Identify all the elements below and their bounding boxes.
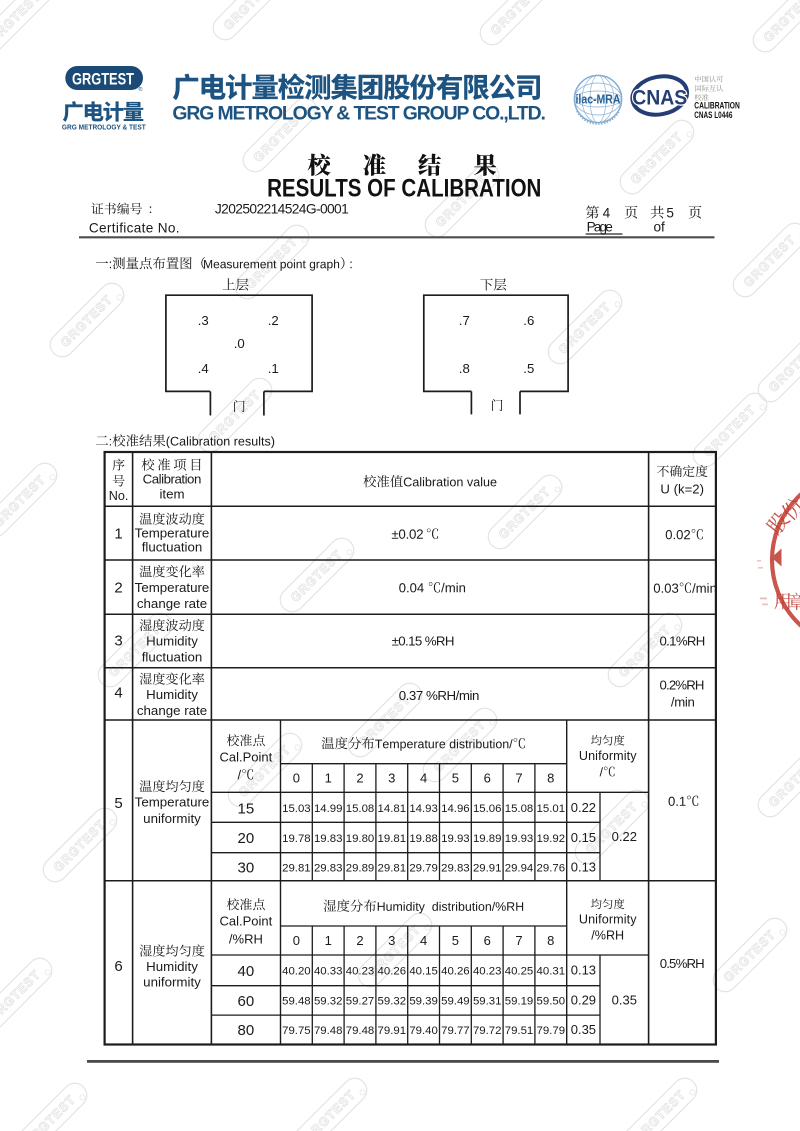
svg-text:uniformity: uniformity [143, 811, 201, 826]
svg-text:5: 5 [114, 795, 122, 812]
svg-text:79.77: 79.77 [441, 1025, 470, 1037]
svg-text:29.91: 29.91 [473, 863, 502, 875]
svg-text:79.79: 79.79 [537, 1025, 566, 1037]
svg-text:1: 1 [114, 526, 122, 543]
svg-text:19.89: 19.89 [473, 833, 502, 845]
svg-text:6: 6 [484, 933, 491, 948]
svg-text:79.72: 79.72 [473, 1025, 502, 1037]
svg-text:0.13: 0.13 [571, 860, 596, 875]
svg-text:80: 80 [238, 1022, 255, 1039]
svg-text:79.48: 79.48 [346, 1025, 375, 1037]
svg-text:14.81: 14.81 [378, 803, 407, 815]
svg-text:.5: .5 [523, 361, 534, 376]
svg-text:0.13: 0.13 [571, 963, 596, 978]
svg-text:1: 1 [325, 771, 332, 786]
svg-text:0.37 %RH/min: 0.37 %RH/min [399, 688, 480, 703]
svg-text:Humidity: Humidity [146, 959, 198, 974]
svg-text:15.08: 15.08 [346, 803, 375, 815]
svg-text:GRG METROLOGY & TEST: GRG METROLOGY & TEST [62, 122, 146, 131]
svg-text:40.20: 40.20 [282, 966, 311, 978]
svg-text:.7: .7 [459, 313, 470, 328]
svg-text:40.25: 40.25 [505, 966, 534, 978]
svg-text:15.06: 15.06 [473, 803, 502, 815]
svg-text:®: ® [138, 86, 143, 93]
svg-text:No.: No. [109, 489, 129, 503]
svg-text:.3: .3 [198, 313, 209, 328]
svg-text:0.22: 0.22 [612, 829, 637, 844]
svg-text:7: 7 [515, 933, 522, 948]
svg-text:0.35: 0.35 [571, 1022, 596, 1037]
svg-text:change rate: change rate [137, 703, 207, 718]
svg-text:/%RH: /%RH [591, 929, 624, 943]
svg-text:59.19: 59.19 [505, 996, 534, 1008]
svg-text:GRG METROLOGY & TEST GROUP CO.: GRG METROLOGY & TEST GROUP CO.,LTD. [172, 102, 546, 124]
svg-text:Temperature: Temperature [135, 526, 210, 541]
svg-text:4: 4 [420, 933, 427, 948]
svg-text:4: 4 [114, 685, 122, 702]
svg-text:19.80: 19.80 [346, 833, 375, 845]
svg-text:1: 1 [325, 933, 332, 948]
svg-text:59.50: 59.50 [537, 996, 566, 1008]
svg-text:Certificate No.: Certificate No. [89, 221, 180, 236]
svg-text:2: 2 [356, 933, 363, 948]
svg-text:40.26: 40.26 [441, 966, 470, 978]
svg-text:CNAS: CNAS [632, 87, 687, 110]
svg-text:of: of [654, 220, 666, 235]
svg-text:40.23: 40.23 [346, 966, 375, 978]
svg-text:3: 3 [388, 933, 395, 948]
svg-text:14.93: 14.93 [409, 803, 438, 815]
svg-text:/%RH: /%RH [229, 932, 263, 947]
svg-text:.8: .8 [459, 361, 470, 376]
svg-text:8: 8 [547, 933, 554, 948]
svg-text:3: 3 [388, 771, 395, 786]
svg-text:19.93: 19.93 [441, 833, 470, 845]
svg-text:4: 4 [603, 205, 611, 220]
svg-text:Humidity: Humidity [146, 634, 198, 649]
svg-text:.0: .0 [234, 336, 245, 351]
svg-text:40.33: 40.33 [314, 966, 343, 978]
svg-text:15.01: 15.01 [537, 803, 566, 815]
svg-text:59.32: 59.32 [378, 996, 407, 1008]
svg-text:59.27: 59.27 [346, 996, 375, 1008]
svg-text:Cal.Point: Cal.Point [220, 750, 273, 765]
svg-text:59.49: 59.49 [441, 996, 470, 1008]
svg-text:29.83: 29.83 [314, 863, 343, 875]
svg-text:40.15: 40.15 [409, 966, 438, 978]
svg-text:6: 6 [114, 958, 122, 975]
svg-text:.2: .2 [268, 313, 279, 328]
svg-text:40: 40 [238, 963, 255, 980]
svg-text:/min: /min [671, 695, 695, 710]
svg-text:40.23: 40.23 [473, 966, 502, 978]
svg-text:0.29: 0.29 [571, 993, 596, 1008]
svg-text:6: 6 [484, 771, 491, 786]
svg-text:19.92: 19.92 [537, 833, 566, 845]
svg-text:U (k=2): U (k=2) [660, 482, 704, 497]
svg-text:15.08: 15.08 [505, 803, 534, 815]
svg-text:Cal.Point: Cal.Point [220, 914, 273, 929]
svg-text:79.48: 79.48 [314, 1025, 343, 1037]
svg-text:59.48: 59.48 [282, 996, 311, 1008]
svg-text:3: 3 [114, 633, 122, 650]
svg-text:14.99: 14.99 [314, 803, 343, 815]
svg-text:15.03: 15.03 [282, 803, 311, 815]
svg-text:30: 30 [238, 860, 255, 877]
svg-text:0.1%RH: 0.1%RH [660, 633, 706, 648]
svg-text:29.79: 29.79 [409, 863, 438, 875]
svg-text:Humidity: Humidity [146, 687, 198, 702]
svg-text:19.81: 19.81 [378, 833, 407, 845]
svg-text:19.88: 19.88 [409, 833, 438, 845]
svg-text:Uniformity: Uniformity [579, 913, 637, 927]
svg-text:8: 8 [547, 771, 554, 786]
svg-text:Calibration: Calibration [143, 472, 202, 487]
svg-text:0.35: 0.35 [612, 992, 637, 1007]
svg-text:29.89: 29.89 [346, 863, 375, 875]
svg-text:fluctuation: fluctuation [142, 649, 203, 664]
svg-text:5: 5 [666, 205, 674, 220]
svg-text:29.83: 29.83 [441, 863, 470, 875]
svg-text:uniformity: uniformity [143, 975, 201, 990]
svg-text:79.91: 79.91 [378, 1025, 407, 1037]
svg-text:29.81: 29.81 [378, 863, 407, 875]
svg-text:7: 7 [515, 771, 522, 786]
svg-text:ilac-MRA: ilac-MRA [576, 91, 621, 106]
svg-text:59.31: 59.31 [473, 996, 502, 1008]
svg-text:0.22: 0.22 [571, 800, 596, 815]
svg-text:0.5%RH: 0.5%RH [660, 956, 705, 971]
svg-text:15: 15 [238, 801, 255, 818]
svg-text:79.75: 79.75 [282, 1025, 311, 1037]
svg-text:19.83: 19.83 [314, 833, 343, 845]
svg-text:item: item [159, 487, 184, 502]
svg-text:change rate: change rate [137, 596, 207, 611]
svg-text:Uniformity: Uniformity [579, 749, 637, 763]
svg-text:40.26: 40.26 [378, 966, 407, 978]
svg-text:CNAS L0446: CNAS L0446 [694, 110, 732, 121]
svg-text:fluctuation: fluctuation [142, 540, 203, 555]
svg-text:59.32: 59.32 [314, 996, 343, 1008]
svg-text:GRGTEST: GRGTEST [72, 70, 134, 88]
svg-text:J202502214524G-0001: J202502214524G-0001 [215, 202, 349, 217]
svg-text:0: 0 [293, 771, 300, 786]
svg-text:2: 2 [356, 771, 363, 786]
svg-text:Temperature: Temperature [135, 580, 210, 595]
svg-text:.4: .4 [198, 361, 209, 376]
svg-text:29.76: 29.76 [537, 863, 566, 875]
svg-text:79.51: 79.51 [505, 1025, 534, 1037]
svg-text:14.96: 14.96 [441, 803, 470, 815]
svg-text:59.39: 59.39 [409, 996, 438, 1008]
svg-text:60: 60 [238, 993, 255, 1010]
svg-text:19.93: 19.93 [505, 833, 534, 845]
svg-text:RESULTS OF CALIBRATION: RESULTS OF CALIBRATION [267, 175, 541, 202]
svg-text:0.2%RH: 0.2%RH [660, 677, 705, 692]
svg-text:4: 4 [420, 771, 427, 786]
svg-text:29.81: 29.81 [282, 863, 311, 875]
svg-text:Page: Page [587, 220, 613, 235]
svg-text:5: 5 [452, 933, 459, 948]
svg-text:20: 20 [238, 830, 255, 847]
svg-text:.6: .6 [523, 313, 534, 328]
svg-text:±0.15 %RH: ±0.15 %RH [392, 634, 455, 649]
svg-text:5: 5 [452, 771, 459, 786]
svg-text:2: 2 [114, 580, 122, 597]
svg-text:0.15: 0.15 [571, 830, 596, 845]
svg-text:40.31: 40.31 [537, 966, 566, 978]
svg-text:19.78: 19.78 [282, 833, 311, 845]
svg-text:29.94: 29.94 [505, 863, 534, 875]
svg-text:Temperature: Temperature [135, 795, 210, 810]
svg-text:.1: .1 [268, 361, 279, 376]
svg-text:0: 0 [293, 933, 300, 948]
svg-text:79.40: 79.40 [409, 1025, 438, 1037]
